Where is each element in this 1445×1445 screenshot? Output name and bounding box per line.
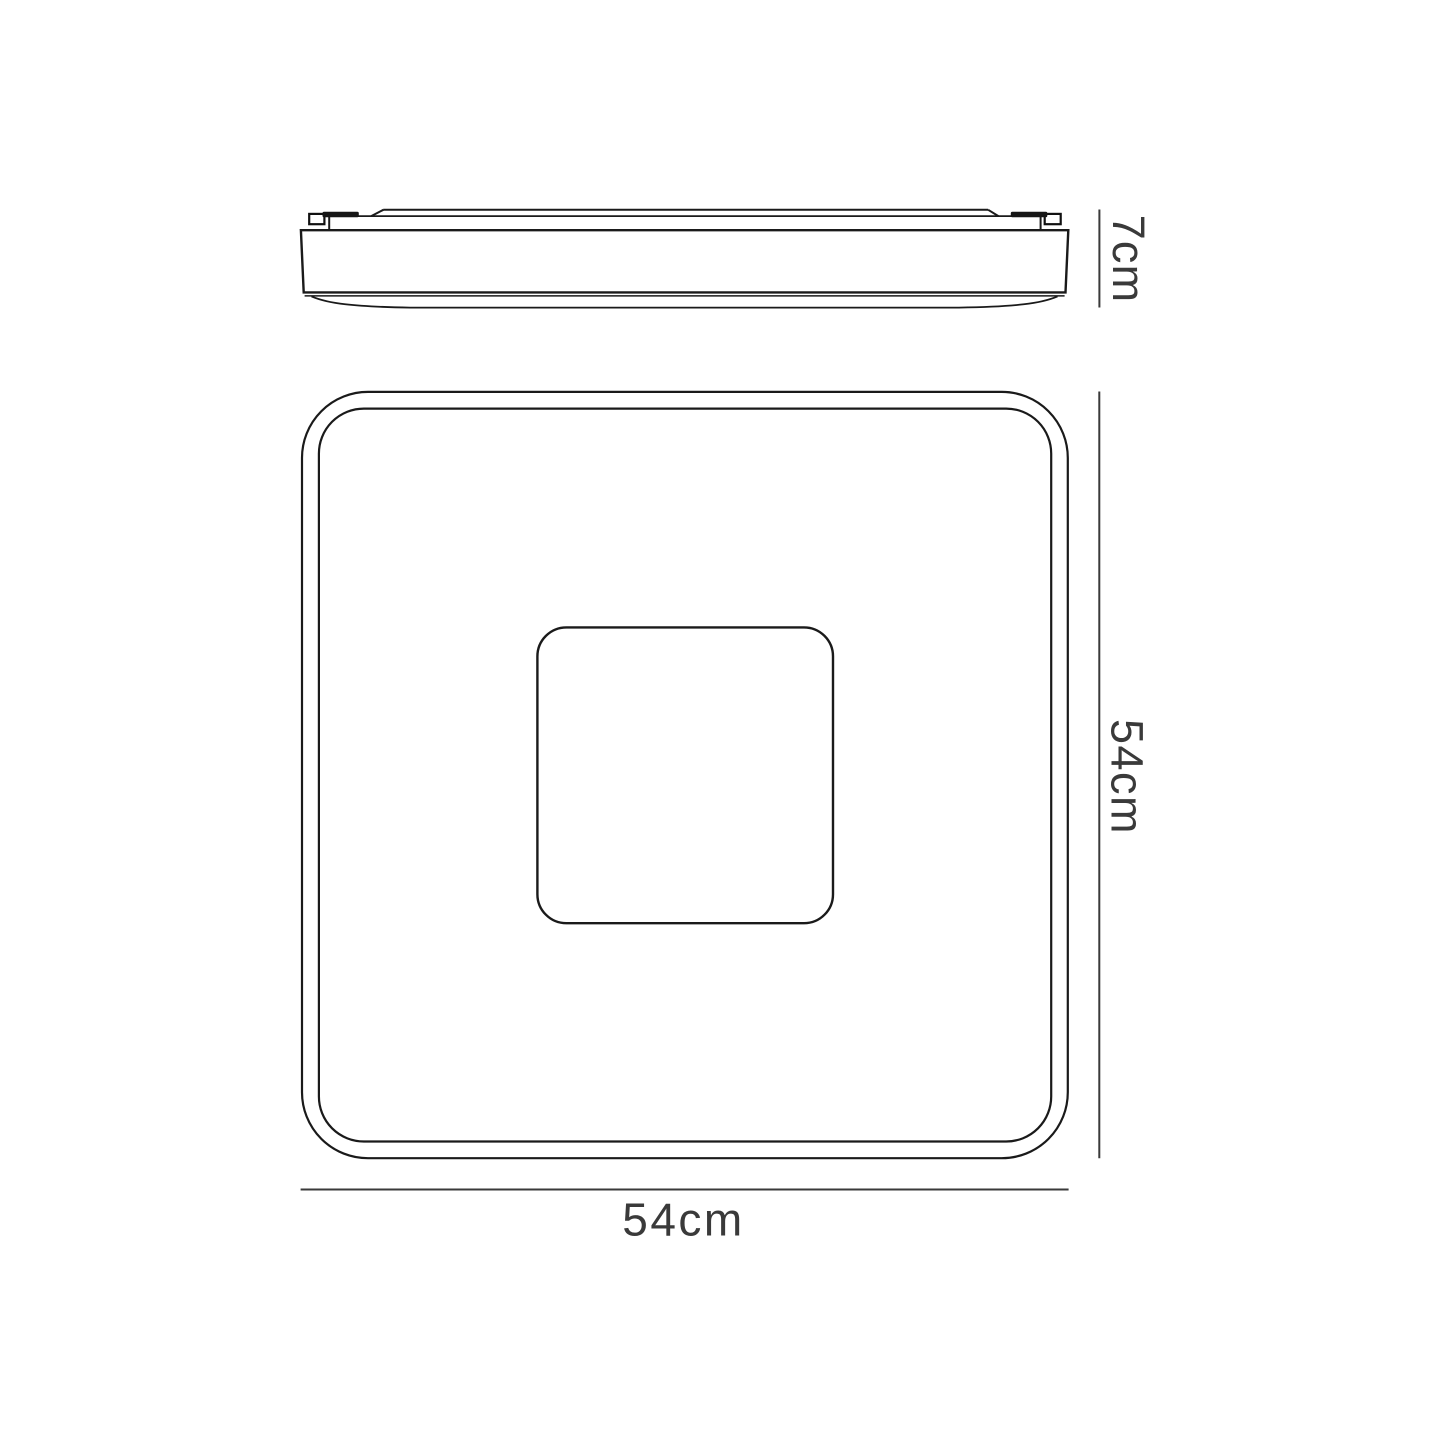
svg-text:7cm: 7cm — [1103, 215, 1154, 304]
svg-text:54cm: 54cm — [1102, 719, 1153, 835]
svg-text:54cm: 54cm — [622, 1193, 744, 1245]
